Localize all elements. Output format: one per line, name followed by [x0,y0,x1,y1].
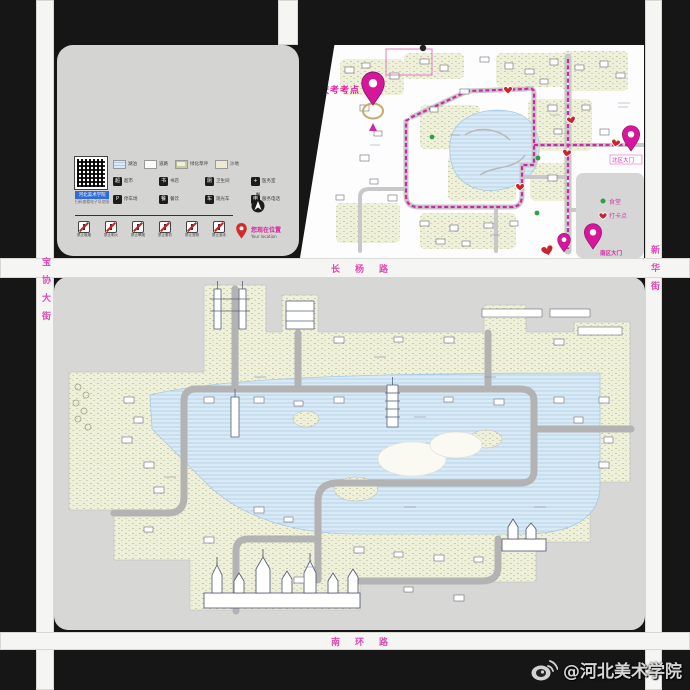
legend-item-shop: 超超市 [113,177,157,186]
warning-label: 禁止垂钓 [152,233,178,237]
qr-code: 河北美术学院 扫码查看电子导览图 [75,157,109,205]
no-fishing-icon [159,221,171,233]
compass-icon [251,199,265,213]
water-swatch [113,160,126,169]
no-pets-icon [186,221,198,233]
tour-car-icon: 车 [205,195,214,204]
legend-panel: 河北美术学院 扫码查看电子导览图 湖泊 道路 绿化草坪 沙地 超超市 书书店 厕… [57,45,299,256]
grass-swatch [175,160,188,169]
shop-icon: 超 [113,177,122,186]
street-name-right: 新华街 [648,224,661,319]
restroom-icon: 厕 [205,177,214,186]
legend-warning-row: 禁止吸烟 禁止明火 禁止攀爬 禁止垂钓 禁止宠物 禁止游泳 [71,221,232,237]
parking-icon: P [113,195,122,204]
legend-item-label: 医务室 [262,179,276,184]
legend-item-clinic: +医务室 [251,177,295,186]
warning-item-fire: 禁止明火 [98,221,124,237]
warning-label: 禁止明火 [98,233,124,237]
location-label: 您现在位置 [251,225,281,234]
dining-icon: 餐 [159,195,168,204]
no-fire-icon [105,221,117,233]
road-strip-right [645,0,662,690]
legend-facility-row-2: P停车场 餐餐饮 车观光车 电服务电话 [113,195,295,204]
road-stub-top [278,0,298,45]
south-gate-label: 南区大门 [600,249,623,257]
warning-item-pets: 禁止宠物 [179,221,205,237]
legend-area-row: 湖泊 道路 绿化草坪 沙地 [113,160,239,169]
legend-item-sand: 沙地 [215,160,239,169]
watermark: @河北美术学院 [530,657,682,682]
qr-subtext: 扫码查看电子导览图 [75,200,109,205]
qr-code-image [75,157,107,189]
legend-item-tourcar: 车观光车 [205,195,249,204]
legend-divider [75,215,233,216]
legend-item-label: 卫生间 [216,179,230,184]
sand-swatch [215,160,228,169]
warning-label: 禁止游泳 [206,233,232,237]
legend-item-label: 停车场 [124,197,138,202]
legend-item-label: 书店 [170,179,179,184]
clinic-icon: + [251,177,260,186]
legend-item-label: 餐饮 [170,197,179,202]
north-campus-map: 校考考点 北区大门 南区大门 食堂 打卡点 [300,45,644,258]
warning-item-swimming: 禁止游泳 [206,221,232,237]
street-name-left: 宝协大街 [39,233,52,353]
watermark-handle: @河北美术学院 [563,657,682,682]
checkin-legend-label: 打卡点 [609,212,627,220]
legend-item-road: 道路 [144,160,168,169]
street-name-middle: 长杨路 [302,262,432,275]
legend-item-label: 超市 [124,179,133,184]
legend-item-label: 道路 [159,162,168,167]
warning-item-smoking: 禁止吸烟 [71,221,97,237]
warning-label: 禁止宠物 [179,233,205,237]
legend-item-parking: P停车场 [113,195,157,204]
legend-item-water: 湖泊 [113,160,137,169]
legend-item-label: 沙地 [230,162,239,167]
legend-item-label: 观光车 [216,197,230,202]
no-smoking-icon [78,221,90,233]
warning-item-fishing: 禁止垂钓 [152,221,178,237]
legend-facility-row-1: 超超市 书书店 厕卫生间 +医务室 [113,177,295,186]
no-swimming-icon [213,221,225,233]
legend-item-label: 绿化草坪 [190,162,208,167]
no-climbing-icon [132,221,144,233]
warning-label: 禁止吸烟 [71,233,97,237]
canteen-legend-label: 食堂 [609,198,621,206]
weibo-icon [530,658,558,682]
qr-caption: 河北美术学院 [75,191,109,199]
compass: N [251,193,265,217]
street-name-bottom: 南环路 [302,635,432,648]
north-gate-label: 北区大门 [612,156,634,164]
compass-label: N [251,193,265,198]
location-sublabel: Your location [251,234,281,239]
warning-item-climbing: 禁止攀爬 [125,221,151,237]
legend-item-grass: 绿化草坪 [175,160,208,169]
legend-item-bookstore: 书书店 [159,177,203,186]
warning-label: 禁止攀爬 [125,233,151,237]
north-entry-marker [420,45,426,51]
current-location: 您现在位置 Your location [235,223,281,240]
road-swatch [144,160,157,169]
canteen-legend-dot [601,199,606,204]
legend-item-label: 湖泊 [128,162,137,167]
legend-item-restroom: 厕卫生间 [205,177,249,186]
exam-site-label: 校考考点 [320,84,360,96]
bookstore-icon: 书 [159,177,168,186]
location-pin-icon [235,223,248,240]
south-campus-map [54,277,645,630]
legend-item-dining: 餐餐饮 [159,195,203,204]
